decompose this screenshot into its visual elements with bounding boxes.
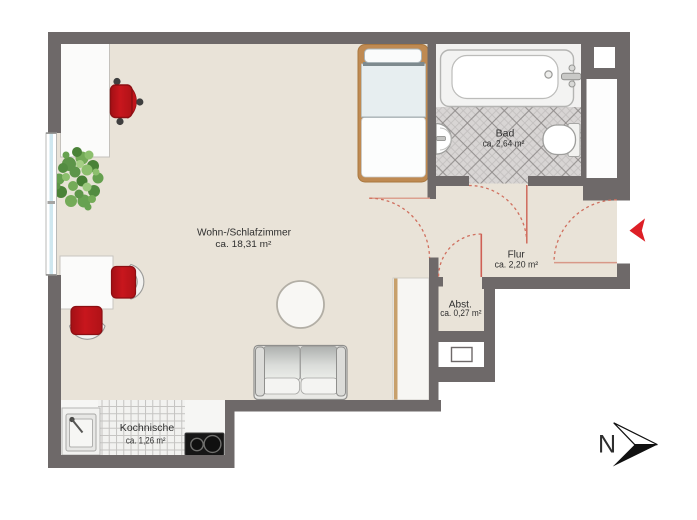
svg-text:ca. 18,31 m²: ca. 18,31 m² xyxy=(215,239,271,249)
svg-text:N: N xyxy=(598,431,616,459)
svg-text:ca. 0,27 m²: ca. 0,27 m² xyxy=(440,308,481,318)
svg-text:Wohn-/Schlafzimmer: Wohn-/Schlafzimmer xyxy=(197,226,291,238)
svg-text:ca. 1,26 m²: ca. 1,26 m² xyxy=(126,435,166,445)
svg-text:ca. 2,20 m²: ca. 2,20 m² xyxy=(495,259,539,269)
svg-text:ca. 2,64 m²: ca. 2,64 m² xyxy=(483,138,525,148)
svg-text:Kochnische: Kochnische xyxy=(120,422,175,434)
